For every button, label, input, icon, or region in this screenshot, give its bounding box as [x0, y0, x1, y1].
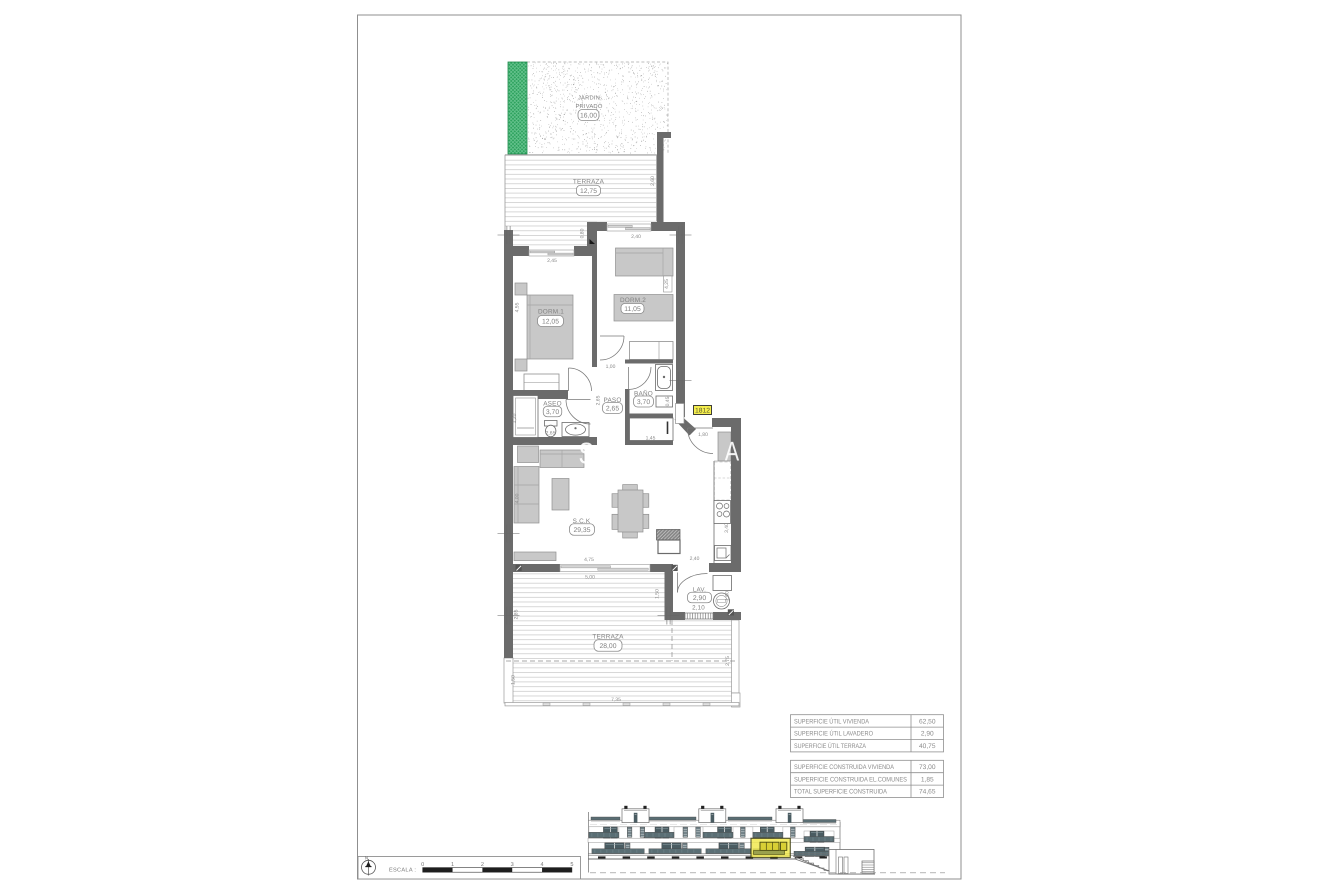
- svg-text:SUPERFICIE ÚTIL TERRAZA: SUPERFICIE ÚTIL TERRAZA: [794, 742, 866, 750]
- svg-text:40,75: 40,75: [919, 743, 936, 750]
- svg-text:1812: 1812: [695, 408, 710, 415]
- svg-text:74,65: 74,65: [919, 789, 936, 796]
- svg-text:3: 3: [511, 862, 514, 868]
- svg-text:28,00: 28,00: [599, 643, 616, 650]
- svg-text:2,65: 2,65: [546, 431, 556, 437]
- svg-text:JARDIN: JARDIN: [578, 96, 600, 102]
- svg-text:16,00: 16,00: [580, 112, 597, 119]
- svg-text:0,80: 0,80: [580, 228, 586, 238]
- svg-text:2,65: 2,65: [596, 395, 602, 405]
- svg-text:7,35: 7,35: [611, 697, 621, 703]
- svg-text:12,05: 12,05: [542, 318, 559, 325]
- svg-text:1,85: 1,85: [921, 776, 934, 783]
- svg-text:2,45: 2,45: [547, 258, 557, 264]
- svg-text:TERRAZA: TERRAZA: [573, 179, 605, 186]
- svg-text:SUPERFICIE ÚTIL LAVADERO: SUPERFICIE ÚTIL LAVADERO: [794, 730, 873, 738]
- svg-text:2,60: 2,60: [650, 176, 656, 186]
- svg-text:PRIVADO: PRIVADO: [575, 103, 602, 110]
- svg-text:1,50: 1,50: [511, 675, 517, 685]
- svg-text:1,00: 1,00: [606, 364, 616, 370]
- svg-text:A: A: [725, 436, 739, 466]
- svg-text:4,00: 4,00: [515, 493, 521, 503]
- svg-text:3,40: 3,40: [724, 523, 730, 533]
- svg-text:1,20: 1,20: [512, 413, 518, 423]
- svg-text:3,70: 3,70: [546, 409, 559, 416]
- svg-text:2,10: 2,10: [692, 605, 705, 612]
- svg-text:ESCALA :: ESCALA :: [389, 868, 416, 874]
- svg-text:62,50: 62,50: [919, 718, 936, 725]
- svg-text:2,40: 2,40: [631, 234, 641, 240]
- svg-text:2,65: 2,65: [606, 405, 619, 412]
- svg-text:1,45: 1,45: [646, 436, 656, 442]
- svg-text:4,55: 4,55: [515, 302, 521, 312]
- svg-text:11,05: 11,05: [624, 306, 641, 313]
- svg-text:2,90: 2,90: [693, 595, 706, 602]
- svg-text:0,45: 0,45: [665, 396, 671, 406]
- svg-text:1,50: 1,50: [655, 589, 661, 599]
- svg-text:DORM.1: DORM.1: [538, 309, 564, 316]
- svg-text:1: 1: [451, 862, 454, 868]
- svg-text:0: 0: [421, 862, 424, 868]
- svg-text:4,25: 4,25: [664, 279, 670, 289]
- svg-text:S: S: [579, 437, 595, 470]
- svg-text:12,75: 12,75: [580, 188, 597, 195]
- svg-text:1,80: 1,80: [698, 432, 708, 438]
- svg-text:3,70: 3,70: [637, 399, 650, 406]
- svg-text:TOTAL SUPERFICIE CONSTRUIDA: TOTAL SUPERFICIE CONSTRUIDA: [794, 789, 888, 796]
- svg-text:2,85: 2,85: [514, 609, 520, 619]
- svg-text:2: 2: [481, 862, 484, 868]
- svg-text:4: 4: [540, 862, 543, 868]
- svg-text:N: N: [365, 856, 368, 861]
- svg-text:SUPERFICIE CONSTRUIDA EL.COMUN: SUPERFICIE CONSTRUIDA EL.COMUNES: [794, 776, 908, 783]
- svg-text:5,00: 5,00: [585, 575, 595, 581]
- svg-text:SUPERFICIE ÚTIL VIVIENDA: SUPERFICIE ÚTIL VIVIENDA: [794, 717, 870, 725]
- svg-text:SUPERFICIE CONSTRUIDA VIVIENDA: SUPERFICIE CONSTRUIDA VIVIENDA: [794, 764, 895, 771]
- svg-text:1,60: 1,60: [725, 591, 731, 601]
- svg-text:DORM.2: DORM.2: [620, 297, 646, 304]
- svg-text:29,35: 29,35: [573, 527, 590, 534]
- svg-text:73,00: 73,00: [919, 764, 936, 771]
- svg-text:5: 5: [570, 862, 573, 868]
- svg-text:4,75: 4,75: [584, 557, 594, 563]
- svg-text:2,75: 2,75: [725, 656, 731, 666]
- svg-text:2,90: 2,90: [921, 731, 934, 738]
- svg-text:2,40: 2,40: [690, 556, 700, 562]
